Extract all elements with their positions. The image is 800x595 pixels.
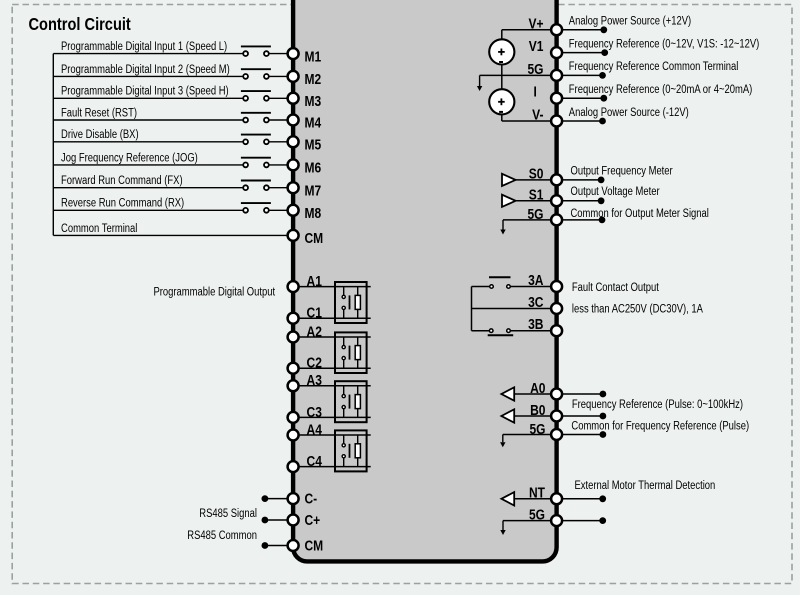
svg-text:V+: V+	[529, 16, 544, 32]
svg-text:CM: CM	[305, 539, 324, 555]
svg-text:Programmable Digital Input 2 (: Programmable Digital Input 2 (Speed M)	[61, 64, 230, 76]
svg-text:External Motor Thermal Detecti: External Motor Thermal Detection	[575, 480, 716, 492]
svg-text:Output Voltage Meter: Output Voltage Meter	[571, 186, 660, 198]
svg-text:V1: V1	[529, 39, 544, 55]
svg-text:B0: B0	[530, 403, 545, 419]
svg-text:Output Frequency Meter: Output Frequency Meter	[571, 165, 673, 177]
svg-text:NT: NT	[529, 485, 545, 501]
svg-text:Control Circuit: Control Circuit	[29, 14, 131, 34]
svg-text:S0: S0	[529, 166, 544, 182]
svg-text:Fault Reset (RST): Fault Reset (RST)	[61, 107, 137, 119]
svg-text:5G: 5G	[530, 422, 546, 438]
svg-text:Fault Contact Output: Fault Contact Output	[572, 282, 660, 294]
svg-text:Common for Output Meter Signal: Common for Output Meter Signal	[571, 208, 709, 220]
svg-text:V-: V-	[532, 108, 544, 124]
svg-text:Frequency Reference (0~20mA or: Frequency Reference (0~20mA or 4~20mA)	[569, 84, 753, 96]
svg-text:Forward Run Command (FX): Forward Run Command (FX)	[61, 175, 183, 187]
svg-text:3B: 3B	[528, 317, 543, 333]
svg-text:Frequency Reference (0~12V, V1: Frequency Reference (0~12V, V1S: -12~12V…	[569, 38, 760, 50]
svg-text:Jog Frequency Reference (JOG): Jog Frequency Reference (JOG)	[61, 152, 198, 164]
svg-text:Common Terminal: Common Terminal	[61, 223, 137, 235]
svg-text:less than AC250V (DC30V), 1A: less than AC250V (DC30V), 1A	[572, 303, 703, 315]
svg-text:3A: 3A	[528, 273, 543, 289]
svg-text:5G: 5G	[528, 207, 544, 223]
svg-text:Reverse Run Command (RX): Reverse Run Command (RX)	[61, 198, 184, 210]
svg-text:Analog Power Source (-12V): Analog Power Source (-12V)	[569, 107, 689, 119]
svg-text:C4: C4	[307, 454, 322, 470]
svg-text:M6: M6	[305, 161, 322, 177]
svg-text:C3: C3	[307, 405, 322, 421]
svg-text:C2: C2	[307, 356, 322, 372]
svg-text:M8: M8	[305, 206, 322, 222]
svg-text:S1: S1	[529, 187, 544, 203]
svg-text:M7: M7	[305, 183, 322, 199]
svg-text:M3: M3	[305, 94, 322, 110]
svg-text:A3: A3	[307, 373, 322, 389]
svg-text:CM: CM	[305, 231, 324, 247]
svg-text:M1: M1	[305, 49, 322, 65]
svg-text:5G: 5G	[528, 62, 544, 78]
svg-text:M4: M4	[305, 116, 322, 132]
svg-text:C1: C1	[307, 306, 322, 322]
svg-text:3C: 3C	[528, 295, 543, 311]
svg-text:Common for Frequency Reference: Common for Frequency Reference (Pulse)	[571, 421, 749, 433]
svg-text:A4: A4	[307, 422, 322, 438]
svg-text:Frequency Reference Common Ter: Frequency Reference Common Terminal	[569, 61, 739, 73]
svg-text:M2: M2	[305, 72, 322, 88]
svg-text:RS485 Signal: RS485 Signal	[199, 508, 257, 520]
svg-text:Drive Disable (BX): Drive Disable (BX)	[61, 129, 139, 141]
svg-text:Programmable Digital Output: Programmable Digital Output	[154, 287, 276, 299]
svg-text:RS485 Common: RS485 Common	[187, 530, 257, 542]
svg-text:C-: C-	[305, 492, 318, 508]
svg-text:5G: 5G	[529, 508, 545, 524]
svg-text:A1: A1	[307, 274, 322, 290]
svg-text:A2: A2	[307, 324, 322, 340]
svg-text:M5: M5	[305, 138, 322, 154]
svg-text:A0: A0	[530, 381, 545, 397]
svg-text:C+: C+	[305, 513, 321, 529]
svg-text:Frequency Reference (Pulse: 0~: Frequency Reference (Pulse: 0~100kHz)	[572, 399, 743, 411]
svg-text:Programmable Digital Input 1 (: Programmable Digital Input 1 (Speed L)	[61, 41, 227, 53]
svg-text:Programmable Digital Input 3 (: Programmable Digital Input 3 (Speed H)	[61, 86, 229, 98]
svg-text:I: I	[534, 85, 537, 101]
svg-text:Analog Power Source (+12V): Analog Power Source (+12V)	[569, 16, 692, 28]
